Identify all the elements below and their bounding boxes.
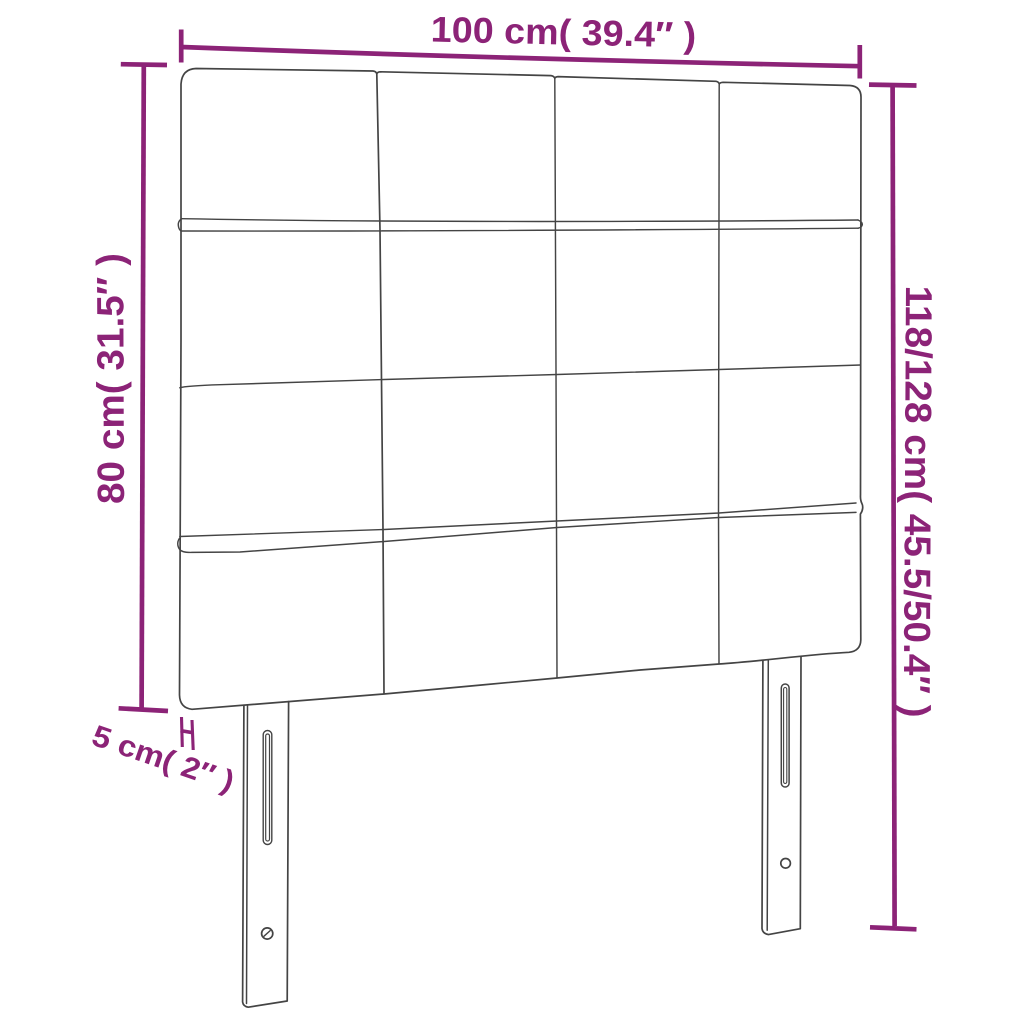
svg-text:100 cm( 39.4″ ): 100 cm( 39.4″ ) <box>430 9 696 56</box>
svg-text:5 cm( 2″ ): 5 cm( 2″ ) <box>88 719 239 798</box>
svg-text:80 cm( 31.5″ ): 80 cm( 31.5″ ) <box>90 253 133 504</box>
svg-text:118/128 cm( 45.5/50.4″ ): 118/128 cm( 45.5/50.4″ ) <box>896 285 940 717</box>
